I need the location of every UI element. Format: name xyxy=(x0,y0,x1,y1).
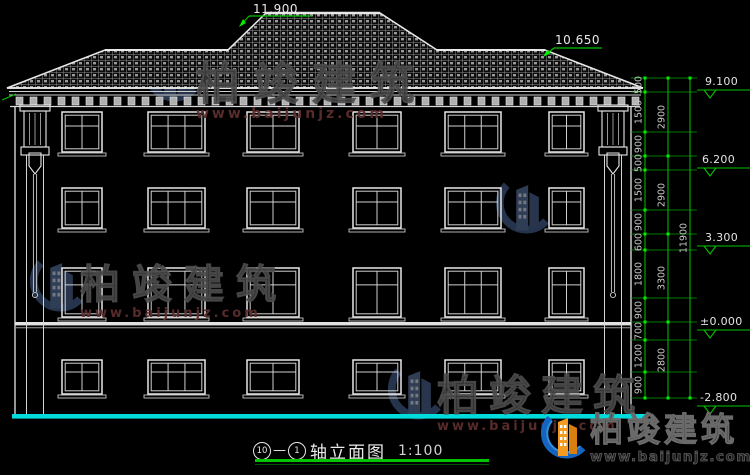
title-underline xyxy=(255,459,489,462)
svg-text:900: 900 xyxy=(634,301,645,319)
window-sill xyxy=(441,318,505,321)
dentil xyxy=(114,97,121,105)
window-sill xyxy=(349,318,405,321)
window-sill xyxy=(58,153,106,156)
svg-text:2800: 2800 xyxy=(657,348,668,372)
dentil xyxy=(128,97,135,105)
ridge-elevation-label: 11.900 xyxy=(253,2,298,16)
watermark-top: 柏竣建筑 www.baijunjz.com xyxy=(196,48,428,122)
dentil xyxy=(478,97,485,105)
downspout-hopper xyxy=(607,153,619,174)
dentil xyxy=(520,97,527,105)
dentil xyxy=(534,97,541,105)
title-underline-thin xyxy=(255,464,489,465)
window-sill xyxy=(545,318,588,321)
window-sill xyxy=(144,153,209,156)
drawing-scale: 1:100 xyxy=(398,443,443,459)
dentil xyxy=(44,97,51,105)
window xyxy=(243,188,303,232)
window-sill xyxy=(144,229,209,232)
dentil xyxy=(464,97,471,105)
window xyxy=(144,188,209,232)
svg-text:500: 500 xyxy=(634,76,645,94)
svg-text:1500: 1500 xyxy=(634,178,645,202)
dentil xyxy=(506,97,513,105)
dentil xyxy=(604,97,611,105)
level-markers xyxy=(697,90,750,414)
svg-text:700: 700 xyxy=(634,322,645,340)
brand-logo-icon xyxy=(538,412,586,464)
dentil xyxy=(436,97,443,105)
dentil xyxy=(492,97,499,105)
dentil xyxy=(30,97,37,105)
watermark-brand-text: 柏竣建筑 xyxy=(80,252,288,310)
dimension-chain: 5001500900500150090060018009007001200900… xyxy=(631,76,697,400)
window-sill xyxy=(349,395,405,398)
window-sill xyxy=(144,395,209,398)
dentil xyxy=(618,97,625,105)
window xyxy=(545,112,588,156)
svg-text:1500: 1500 xyxy=(634,100,645,124)
dentil xyxy=(16,97,23,105)
dentil xyxy=(576,97,583,105)
axis-bubble-end: 1 xyxy=(288,442,306,460)
window xyxy=(349,268,405,321)
window xyxy=(58,112,106,156)
level-label: -2.800 xyxy=(700,391,750,404)
svg-text:1800: 1800 xyxy=(634,262,645,286)
level-label: 6.200 xyxy=(702,153,750,166)
downspout-hopper xyxy=(29,153,41,174)
window xyxy=(349,360,405,398)
dentil xyxy=(184,97,191,105)
dentil xyxy=(58,97,65,105)
window xyxy=(243,360,303,398)
brand-logo-text: 柏竣建筑 xyxy=(590,412,750,448)
window xyxy=(441,112,505,156)
svg-text:2900: 2900 xyxy=(657,183,668,207)
window-sill xyxy=(349,229,405,232)
dentil xyxy=(86,97,93,105)
window-sill xyxy=(243,153,303,156)
floor-band xyxy=(15,322,631,325)
watermark-middle: 柏竣建筑 www.baijunjz.com xyxy=(80,252,288,321)
window-sill xyxy=(58,395,106,398)
svg-text:2900: 2900 xyxy=(657,105,668,129)
dentil xyxy=(170,97,177,105)
window-sill xyxy=(545,229,588,232)
dentil xyxy=(548,97,555,105)
svg-text:600: 600 xyxy=(634,233,645,251)
pilaster xyxy=(20,105,50,414)
dentil xyxy=(590,97,597,105)
window xyxy=(545,268,588,321)
dentil xyxy=(156,97,163,105)
dentil xyxy=(100,97,107,105)
level-label: 9.100 xyxy=(705,75,750,88)
window xyxy=(349,188,405,232)
window xyxy=(144,360,209,398)
window xyxy=(58,188,106,232)
svg-text:3300: 3300 xyxy=(657,266,668,290)
window-sill xyxy=(243,395,303,398)
brand-logo: 柏竣建筑 www.baijunjz.com xyxy=(538,412,750,465)
svg-text:900: 900 xyxy=(634,135,645,153)
window xyxy=(441,188,505,232)
watermark-brand-text: 柏竣建筑 xyxy=(196,48,428,112)
level-label: 3.300 xyxy=(705,231,750,244)
watermark-url-text: www.baijunjz.com xyxy=(196,106,428,122)
dentil xyxy=(450,97,457,105)
axis-bubble-start: 10 xyxy=(253,442,271,460)
dentil xyxy=(142,97,149,105)
window xyxy=(58,360,106,398)
svg-text:500: 500 xyxy=(634,154,645,172)
svg-text:900: 900 xyxy=(634,213,645,231)
window-sill xyxy=(441,229,505,232)
brand-logo-url: www.baijunjz.com xyxy=(590,449,750,465)
side-ridge-elevation-label: 10.650 xyxy=(555,33,600,47)
axis-dash: — xyxy=(273,443,286,458)
window-sill xyxy=(243,229,303,232)
window xyxy=(545,188,588,232)
window-sill xyxy=(58,229,106,232)
elevation-sheet: 5001500900500150090060018009007001200900… xyxy=(0,0,750,475)
svg-text:11900: 11900 xyxy=(679,223,690,253)
dentil xyxy=(72,97,79,105)
window-sill xyxy=(545,153,588,156)
dentil xyxy=(562,97,569,105)
watermark-url-text: www.baijunjz.com xyxy=(80,306,288,321)
level-label: ±0.000 xyxy=(700,315,750,328)
window xyxy=(441,268,505,321)
window-sill xyxy=(349,153,405,156)
window-sill xyxy=(441,153,505,156)
